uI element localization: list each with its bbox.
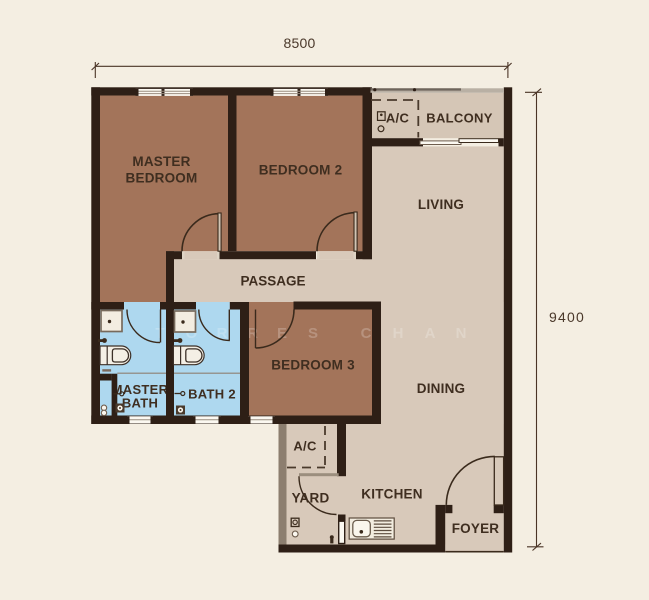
svg-text:BEDROOM: BEDROOM (126, 171, 198, 186)
svg-text:BEDROOM 3: BEDROOM 3 (271, 358, 355, 373)
svg-text:S: S (308, 325, 318, 342)
svg-text:C: C (361, 325, 372, 342)
svg-text:MASTER: MASTER (132, 154, 190, 169)
svg-text:DINING: DINING (417, 381, 465, 396)
svg-text:LIVING: LIVING (418, 197, 464, 212)
svg-text:H: H (393, 325, 404, 342)
svg-text:BALCONY: BALCONY (426, 111, 492, 126)
svg-text:KITCHEN: KITCHEN (361, 487, 422, 502)
svg-text:BATH: BATH (122, 396, 158, 411)
svg-text:A: A (425, 325, 436, 342)
svg-text:BEDROOM 2: BEDROOM 2 (259, 162, 343, 177)
svg-text:A/C: A/C (386, 111, 410, 126)
svg-text:9400: 9400 (549, 309, 585, 325)
svg-text:FOYER: FOYER (452, 521, 500, 536)
svg-text:8500: 8500 (284, 35, 316, 51)
svg-text:PASSAGE: PASSAGE (240, 273, 305, 288)
svg-text:N: N (456, 325, 467, 342)
svg-text:A/C: A/C (293, 438, 317, 453)
svg-text:BATH 2: BATH 2 (188, 387, 236, 402)
